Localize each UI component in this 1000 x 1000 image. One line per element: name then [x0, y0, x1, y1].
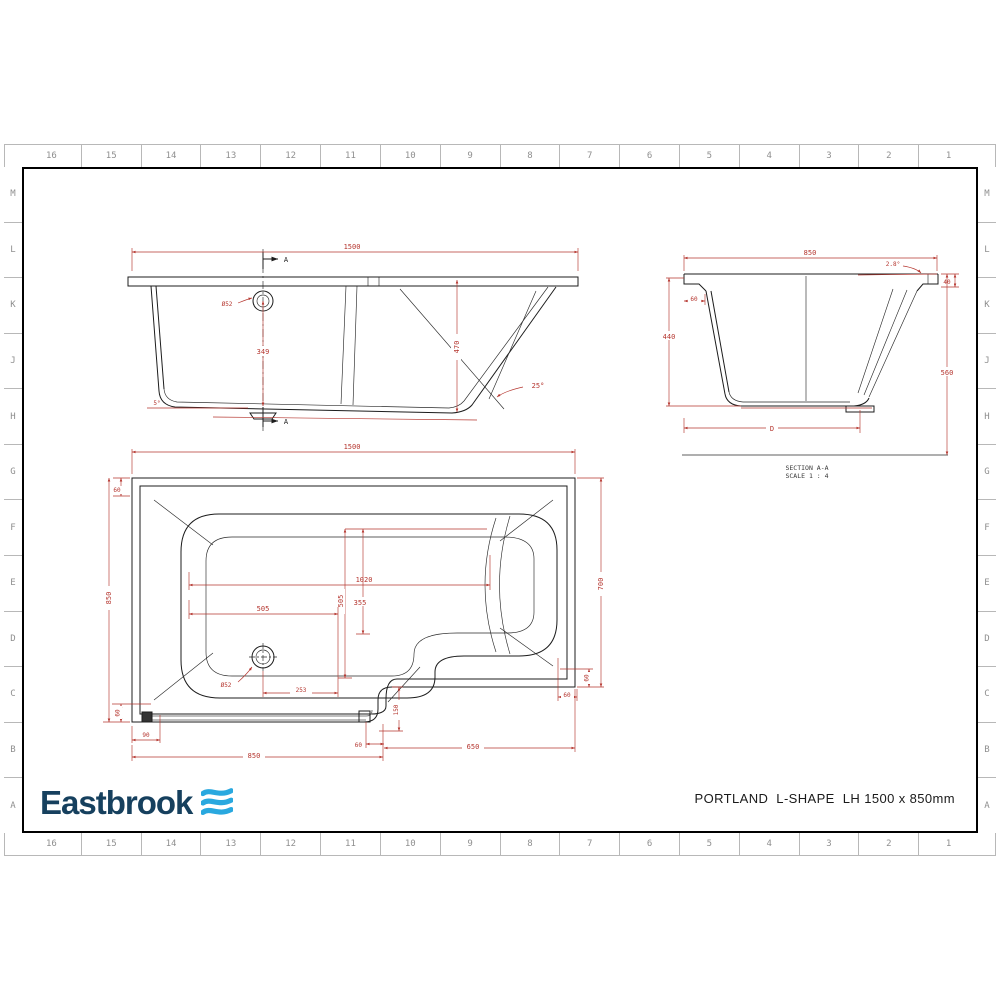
grid-column-label: 10 — [381, 145, 441, 167]
technical-drawing: A A 1500 Ø52 349 470 25° 5° — [22, 167, 978, 833]
grid-row-label: F — [978, 500, 996, 556]
grid-column-label: 4 — [740, 145, 800, 167]
brand-waves-icon — [201, 787, 233, 819]
grid-row-label: K — [978, 278, 996, 334]
dim-drain-offset: 253 — [296, 687, 307, 694]
grid-column-label: 10 — [381, 833, 441, 855]
grid-column-label: 4 — [740, 833, 800, 855]
side-elevation-view: A A 1500 Ø52 349 470 25° 5° — [128, 243, 578, 431]
section-left-lip — [684, 274, 706, 291]
section-marker-a-top: A — [284, 256, 289, 264]
dim-rim-angle: 2.8° — [886, 261, 900, 268]
grid-column-label: 8 — [501, 145, 561, 167]
grid-column-label: 3 — [800, 145, 860, 167]
grid-row-label: M — [978, 167, 996, 223]
grid-row-label: D — [978, 612, 996, 668]
dim-drain-height: 349 — [257, 348, 270, 356]
grid-row-label: B — [4, 723, 22, 779]
dim-step-gap: 60 — [355, 742, 363, 749]
grid-row-label: C — [978, 667, 996, 723]
grid-row-label: C — [4, 667, 22, 723]
dim-depth: 470 — [453, 341, 461, 354]
bath-head-wall — [151, 286, 164, 391]
grid-row-label: E — [978, 556, 996, 612]
grid-row-label: L — [978, 223, 996, 279]
grid-column-label: 1 — [919, 833, 978, 855]
dim-seat-width: 355 — [354, 599, 367, 607]
grid-column-label: 15 — [82, 833, 142, 855]
grid-column-label: 6 — [620, 833, 680, 855]
grid-row-label: G — [4, 445, 22, 501]
grid-column-label: 7 — [560, 833, 620, 855]
brand-name: Eastbrook — [40, 784, 192, 822]
drawing-sheet: { "sheet": { "grid_columns": ["16","15",… — [0, 0, 1000, 1000]
grid-band-right: MLKJHGFEDCBA — [978, 167, 996, 833]
section-bottom — [725, 394, 869, 406]
dim-waste-length: 90 — [142, 732, 150, 739]
dim-plan-drain-diameter: Ø52 — [221, 682, 232, 689]
grid-column-label: 9 — [441, 145, 501, 167]
dim-overall-length: 1500 — [344, 243, 361, 251]
brand-logo: Eastbrook — [40, 784, 233, 822]
grid-column-label: 1 — [919, 145, 978, 167]
dim-overall-height: 560 — [941, 369, 954, 377]
grid-row-label: B — [978, 723, 996, 779]
dim-base-width: D — [770, 425, 774, 433]
bath-rim-profile — [128, 277, 578, 286]
grid-row-label: D — [4, 612, 22, 668]
grid-column-label: 16 — [22, 145, 82, 167]
grid-column-label: 7 — [560, 145, 620, 167]
grid-column-label: 14 — [142, 145, 202, 167]
dim-rim-right-v: 60 — [584, 674, 591, 682]
grid-column-label: 8 — [501, 833, 561, 855]
grid-column-label: 5 — [680, 833, 740, 855]
section-view-scale: SCALE 1 : 4 — [785, 472, 828, 480]
grid-row-label: L — [4, 223, 22, 279]
dim-rim-right-h: 60 — [563, 692, 571, 699]
grid-column-label: 3 — [800, 833, 860, 855]
section-left-wall — [706, 291, 729, 394]
dim-inner-depth: 440 — [663, 333, 676, 341]
dim-drain-diameter: Ø52 — [222, 301, 233, 308]
waste-trap-fitting — [142, 712, 152, 722]
grid-row-label: J — [978, 334, 996, 390]
grid-row-label: G — [978, 445, 996, 501]
grid-column-label: 16 — [22, 833, 82, 855]
grid-row-label: J — [4, 334, 22, 390]
bath-bottom-outline — [159, 287, 556, 413]
dim-drain-x: 505 — [257, 605, 270, 613]
grid-column-label: 5 — [680, 145, 740, 167]
dim-plan-length: 1500 — [344, 443, 361, 451]
grid-column-label: 13 — [201, 833, 261, 855]
dim-rim-width: 60 — [690, 296, 698, 303]
grid-column-label: 12 — [261, 145, 321, 167]
waste-pipe — [151, 710, 372, 720]
dim-bath-length: 650 — [467, 743, 480, 751]
dim-end-angle: 25° — [532, 382, 545, 390]
grid-column-label: 12 — [261, 833, 321, 855]
grid-row-label: H — [978, 389, 996, 445]
dim-step-height: 150 — [393, 704, 400, 715]
grid-row-label: K — [4, 278, 22, 334]
section-marker-a-bottom: A — [284, 418, 289, 426]
dim-inner-width: 505 — [337, 595, 345, 608]
dim-section-width: 850 — [804, 249, 817, 257]
grid-band-left: MLKJHGFEDCBA — [4, 167, 22, 833]
dim-rim-top: 60 — [113, 487, 121, 494]
grid-column-label: 2 — [859, 833, 919, 855]
section-view: 850 2.8° 40 60 440 560 D SECTION A-A SCA… — [659, 249, 959, 480]
grid-row-label: E — [4, 556, 22, 612]
drawing-title: PORTLAND L-SHAPE LH 1500 x 850mm — [695, 791, 955, 806]
dim-inner-length: 1020 — [356, 576, 373, 584]
grid-column-label: 9 — [441, 833, 501, 855]
grid-column-label: 14 — [142, 833, 202, 855]
grid-row-label: H — [4, 389, 22, 445]
plan-view: 1500 60 850 1020 505 355 505 Ø52 253 150 — [103, 443, 605, 761]
grid-row-label: M — [4, 167, 22, 223]
grid-column-label: 15 — [82, 145, 142, 167]
grid-column-label: 13 — [201, 145, 261, 167]
dim-waste-drop: 60 — [115, 709, 122, 717]
grid-band-top: 16151413121110987654321 — [22, 145, 978, 167]
grid-row-label: A — [4, 778, 22, 833]
grid-band-bottom: 16151413121110987654321 — [22, 833, 978, 855]
section-right-lip — [917, 274, 938, 291]
grid-column-label: 2 — [859, 145, 919, 167]
dim-plan-width: 850 — [105, 592, 113, 605]
dim-head-angle: 5° — [153, 400, 160, 407]
dim-shower-length: 850 — [248, 752, 261, 760]
grid-column-label: 11 — [321, 833, 381, 855]
section-view-title: SECTION A-A — [785, 464, 828, 472]
grid-column-label: 11 — [321, 145, 381, 167]
dim-right-width: 700 — [597, 578, 605, 591]
grid-row-label: A — [978, 778, 996, 833]
grid-row-label: F — [4, 500, 22, 556]
grid-column-label: 6 — [620, 145, 680, 167]
